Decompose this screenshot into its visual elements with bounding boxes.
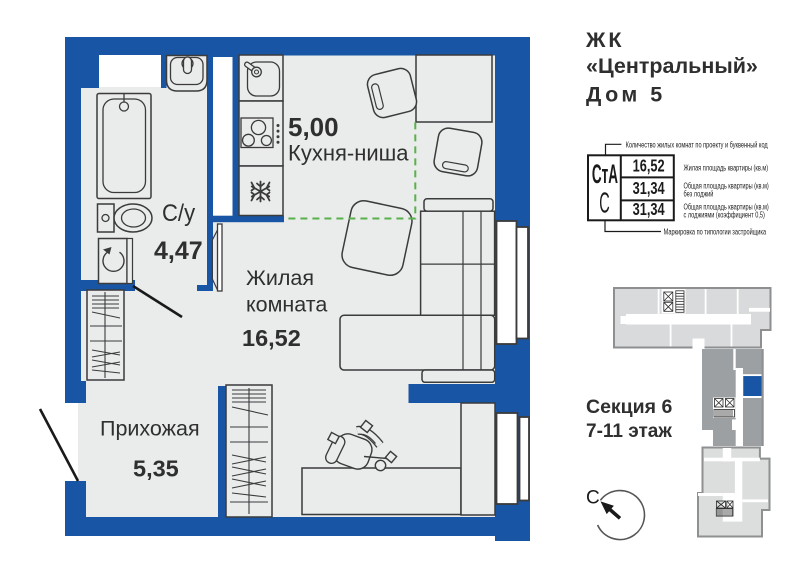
svg-text:16,52: 16,52 [242, 325, 301, 351]
svg-text:31,34: 31,34 [633, 179, 665, 198]
svg-text:ЖК: ЖК [585, 28, 625, 52]
svg-text:С: С [599, 186, 609, 219]
svg-text:без лоджий: без лоджий [684, 188, 714, 199]
svg-text:Жилая площадь квартиры (кв.м): Жилая площадь квартиры (кв.м) [684, 162, 769, 173]
svg-text:Секция 6: Секция 6 [586, 396, 672, 418]
svg-text:Дом 5: Дом 5 [586, 83, 666, 107]
svg-text:комната: комната [246, 293, 327, 317]
svg-text:С/у: С/у [162, 199, 196, 226]
svg-text:16,52: 16,52 [633, 156, 665, 175]
svg-text:7-11 этаж: 7-11 этаж [586, 421, 672, 442]
svg-text:31,34: 31,34 [633, 200, 665, 219]
svg-text:Кухня-ниша: Кухня-ниша [288, 141, 409, 166]
svg-text:5,35: 5,35 [133, 456, 179, 482]
svg-text:Прихожая: Прихожая [100, 417, 200, 441]
svg-text:Жилая: Жилая [246, 266, 314, 290]
svg-text:5,00: 5,00 [288, 112, 339, 142]
svg-text:4,47: 4,47 [154, 237, 203, 265]
svg-text:Количество жилых комнат по про: Количество жилых комнат по проекту и бук… [626, 139, 769, 150]
svg-text:с лоджиями (коэффициент 0,5): с лоджиями (коэффициент 0,5) [684, 209, 765, 220]
svg-text:С: С [586, 488, 600, 509]
svg-text:«Центральный»: «Центральный» [586, 54, 758, 78]
svg-text:Маркировка по типологии застро: Маркировка по типологии застройщика [664, 226, 767, 237]
